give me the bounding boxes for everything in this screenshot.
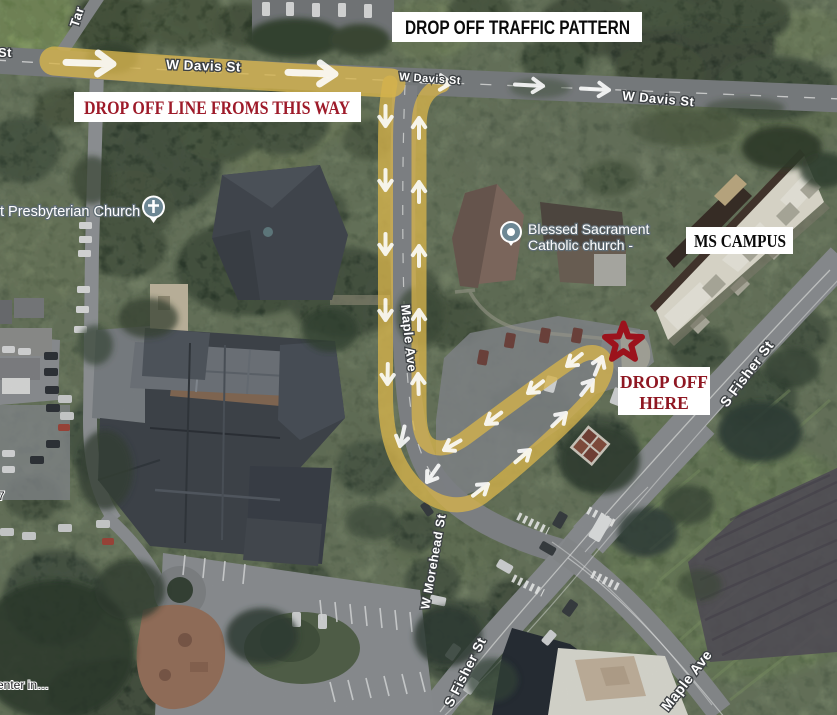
svg-text:W Davis St: W Davis St [166, 57, 241, 75]
svg-text:7: 7 [0, 489, 5, 503]
svg-text:DROP OFF TRAFFIC PATTERN: DROP OFF TRAFFIC PATTERN [405, 18, 630, 39]
svg-text:Blessed Sacrament: Blessed Sacrament [528, 221, 650, 237]
svg-text:DROP OFF: DROP OFF [620, 372, 708, 392]
svg-text:St: St [0, 45, 12, 60]
svg-text:DROP OFF LINE FROMS THIS WAY: DROP OFF LINE FROMS THIS WAY [84, 99, 351, 119]
svg-text:HERE: HERE [639, 393, 689, 413]
svg-text:t Presbyterian Church: t Presbyterian Church [0, 204, 140, 220]
svg-text:enter in…: enter in… [0, 678, 49, 692]
svg-text:MS CAMPUS: MS CAMPUS [694, 231, 786, 251]
svg-text:Catholic church -: Catholic church - [528, 237, 633, 253]
